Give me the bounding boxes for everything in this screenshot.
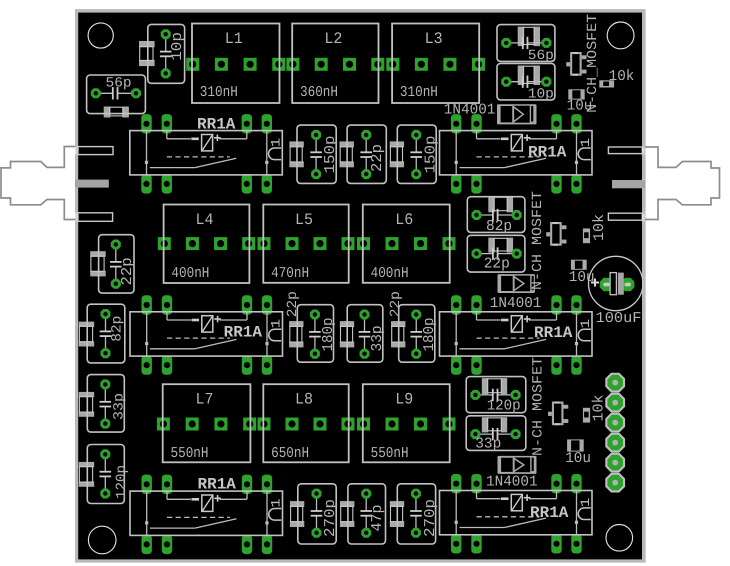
svg-text:22p: 22p — [285, 291, 301, 317]
svg-text:100uF: 100uF — [596, 310, 642, 327]
svg-text:56p: 56p — [106, 76, 132, 92]
svg-text:10u: 10u — [565, 450, 591, 467]
svg-text:1: 1 — [268, 137, 283, 147]
svg-text:L6: L6 — [395, 211, 413, 229]
svg-text:L3: L3 — [425, 30, 443, 48]
svg-text:22p: 22p — [484, 256, 510, 273]
svg-text:270p: 270p — [322, 499, 339, 537]
svg-text:10k: 10k — [591, 214, 608, 241]
svg-text:650nH: 650nH — [271, 445, 309, 462]
svg-text:RR1A: RR1A — [528, 144, 567, 162]
svg-text:310nH: 310nH — [400, 84, 438, 101]
svg-text:L1: L1 — [225, 30, 243, 48]
svg-text:L9: L9 — [395, 391, 413, 409]
svg-text:1: 1 — [578, 497, 593, 507]
svg-text:N-CH_MOSFET: N-CH_MOSFET — [585, 14, 601, 113]
svg-text:33p: 33p — [111, 393, 127, 420]
svg-text:270p: 270p — [422, 499, 439, 537]
svg-text:360nH: 360nH — [300, 84, 338, 101]
svg-text:47p: 47p — [369, 505, 386, 532]
svg-text:120p: 120p — [487, 398, 521, 415]
svg-text:RR1A: RR1A — [224, 324, 263, 342]
svg-text:33p: 33p — [369, 325, 386, 351]
svg-text:L4: L4 — [196, 211, 214, 229]
svg-text:10p: 10p — [169, 32, 186, 61]
svg-text:RR1A: RR1A — [530, 504, 569, 522]
svg-text:56p: 56p — [528, 48, 554, 64]
svg-text:33p: 33p — [475, 436, 501, 453]
svg-text:1: 1 — [578, 137, 593, 147]
svg-text:1: 1 — [269, 319, 284, 329]
svg-text:L5: L5 — [295, 211, 313, 229]
svg-text:22p: 22p — [119, 257, 136, 285]
svg-text:550nH: 550nH — [171, 445, 209, 462]
svg-text:400nH: 400nH — [171, 265, 209, 282]
svg-text:550nH: 550nH — [371, 445, 409, 462]
svg-text:L8: L8 — [295, 391, 313, 409]
svg-text:120p: 120p — [114, 465, 130, 499]
svg-text:1N4001: 1N4001 — [490, 295, 542, 312]
svg-text:22p: 22p — [369, 144, 386, 172]
svg-text:N-CH MOSFET: N-CH MOSFET — [530, 191, 546, 290]
svg-text:10k: 10k — [609, 68, 635, 85]
svg-text:N-CH MOSFET: N-CH MOSFET — [531, 357, 547, 456]
svg-text:RR1A: RR1A — [197, 116, 236, 134]
svg-text:1: 1 — [578, 319, 593, 329]
svg-text:1N4001: 1N4001 — [486, 473, 538, 490]
svg-text:180p: 180p — [320, 318, 337, 352]
svg-text:RR1A: RR1A — [534, 324, 573, 342]
svg-text:RR1A: RR1A — [198, 476, 237, 494]
svg-text:L7: L7 — [196, 391, 214, 409]
svg-text:10k: 10k — [591, 395, 608, 422]
svg-text:470nH: 470nH — [271, 265, 309, 282]
svg-text:10p: 10p — [528, 86, 554, 102]
svg-text:150p: 150p — [322, 136, 339, 174]
svg-text:22p: 22p — [388, 291, 404, 317]
svg-text:L2: L2 — [324, 30, 342, 48]
svg-text:82p: 82p — [110, 316, 126, 342]
svg-text:310nH: 310nH — [200, 84, 238, 101]
svg-text:1N4001: 1N4001 — [444, 102, 496, 119]
svg-text:82p: 82p — [486, 218, 512, 235]
svg-text:1: 1 — [269, 498, 284, 508]
svg-text:180p: 180p — [421, 318, 438, 352]
svg-text:150p: 150p — [422, 136, 439, 174]
svg-text:400nH: 400nH — [371, 265, 409, 282]
